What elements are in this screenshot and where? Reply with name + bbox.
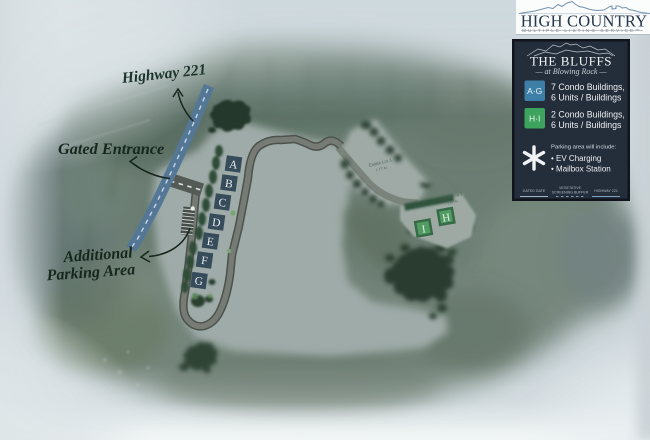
svg-text:Gated Entrance: Gated Entrance [58, 139, 164, 158]
svg-text:GATED GATE: GATED GATE [523, 189, 546, 193]
svg-text:SCREENING BUFFER: SCREENING BUFFER [552, 191, 589, 195]
svg-text:6 Units / Buildings: 6 Units / Buildings [551, 120, 622, 130]
svg-text:MULTIPLE LISTING SERVICE™: MULTIPLE LISTING SERVICE™ [522, 28, 642, 33]
svg-text:• Mailbox Station: • Mailbox Station [551, 165, 611, 174]
svg-text:VEGETATIVE: VEGETATIVE [559, 186, 582, 190]
svg-text:• EV Charging: • EV Charging [551, 154, 601, 163]
svg-text:2 Condo Buildings,: 2 Condo Buildings, [551, 110, 625, 120]
svg-text:6 Units / Buildings: 6 Units / Buildings [551, 93, 622, 103]
svg-text:7 Condo Buildings,: 7 Condo Buildings, [551, 82, 625, 92]
svg-text:HIGHWAY 221: HIGHWAY 221 [594, 189, 618, 193]
svg-text:A·G: A·G [527, 86, 542, 96]
svg-text:Parking area will include:: Parking area will include: [551, 145, 617, 151]
svg-text:H·I: H·I [529, 114, 540, 124]
svg-text:— at Blowing Rock —: — at Blowing Rock — [534, 67, 607, 76]
